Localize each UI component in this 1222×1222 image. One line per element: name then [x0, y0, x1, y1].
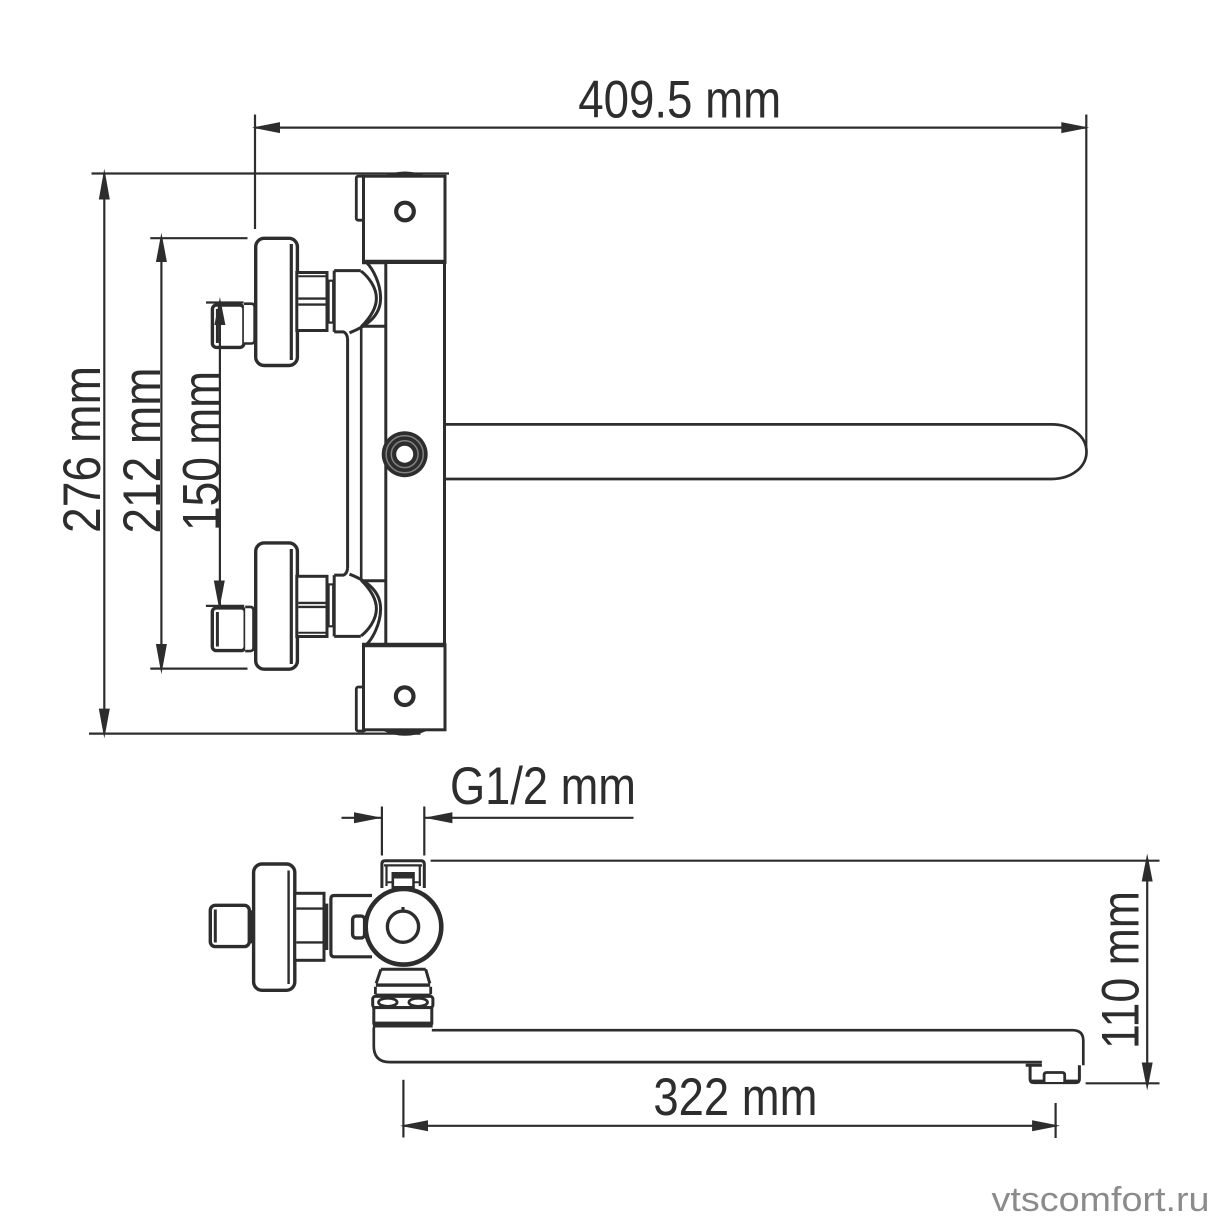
svg-text:409.5 mm: 409.5 mm: [578, 70, 781, 129]
svg-text:110 mm: 110 mm: [1092, 891, 1151, 1049]
svg-text:212 mm: 212 mm: [113, 368, 172, 534]
svg-text:322 mm: 322 mm: [653, 1068, 817, 1127]
svg-text:276 mm: 276 mm: [53, 366, 112, 533]
svg-text:vtscomfort.ru: vtscomfort.ru: [992, 1181, 1210, 1219]
svg-text:G1/2 mm: G1/2 mm: [450, 757, 636, 816]
svg-text:150 mm: 150 mm: [172, 371, 231, 531]
